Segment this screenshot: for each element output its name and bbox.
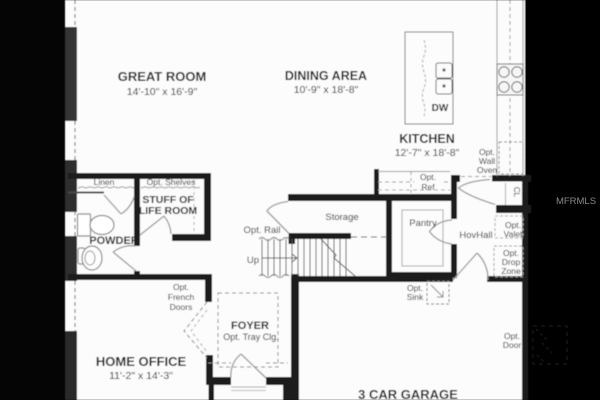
- svg-text:HOME OFFICE: HOME OFFICE: [96, 354, 187, 369]
- svg-text:Zone: Zone: [501, 266, 521, 276]
- svg-text:Opt.: Opt.: [420, 172, 436, 182]
- svg-text:10'-9" x 18'-8": 10'-9" x 18'-8": [294, 84, 359, 96]
- svg-text:Up: Up: [247, 255, 259, 266]
- svg-text:Pantry: Pantry: [409, 218, 437, 229]
- svg-text:Opt.: Opt.: [173, 282, 189, 292]
- svg-text:Opt. Tray Clg.: Opt. Tray Clg.: [223, 332, 279, 342]
- svg-text:Sink: Sink: [407, 292, 424, 302]
- svg-text:11'-2" x 14'-3": 11'-2" x 14'-3": [109, 370, 173, 382]
- svg-text:Linen: Linen: [94, 177, 115, 187]
- svg-text:Door: Door: [503, 340, 522, 350]
- svg-text:FOYER: FOYER: [231, 320, 269, 332]
- svg-text:LIFE ROOM: LIFE ROOM: [139, 205, 198, 217]
- svg-text:GREAT ROOM: GREAT ROOM: [118, 69, 207, 84]
- svg-text:Doors: Doors: [170, 302, 193, 312]
- svg-text:Ref: Ref: [421, 182, 435, 192]
- svg-text:French: French: [168, 292, 195, 302]
- svg-text:HovHall: HovHall: [459, 230, 492, 241]
- svg-text:12'-7" x 18'-8": 12'-7" x 18'-8": [395, 147, 460, 159]
- svg-text:3 CAR GARAGE: 3 CAR GARAGE: [358, 387, 458, 400]
- svg-text:MFRMLS: MFRMLS: [556, 196, 596, 207]
- svg-text:Oven: Oven: [477, 165, 498, 175]
- svg-text:Valet: Valet: [504, 229, 523, 239]
- svg-text:DINING AREA: DINING AREA: [285, 69, 367, 83]
- svg-text:KITCHEN: KITCHEN: [399, 132, 455, 146]
- svg-text:Opt. Rail: Opt. Rail: [244, 225, 281, 236]
- svg-text:Opt. Shelves: Opt. Shelves: [147, 177, 196, 187]
- svg-text:DW: DW: [432, 103, 449, 114]
- svg-text:14'-10" x 16'-9": 14'-10" x 16'-9": [127, 86, 198, 98]
- svg-text:CL: CL: [512, 187, 521, 198]
- svg-text:Storage: Storage: [325, 212, 358, 223]
- svg-text:POWDER: POWDER: [89, 235, 139, 247]
